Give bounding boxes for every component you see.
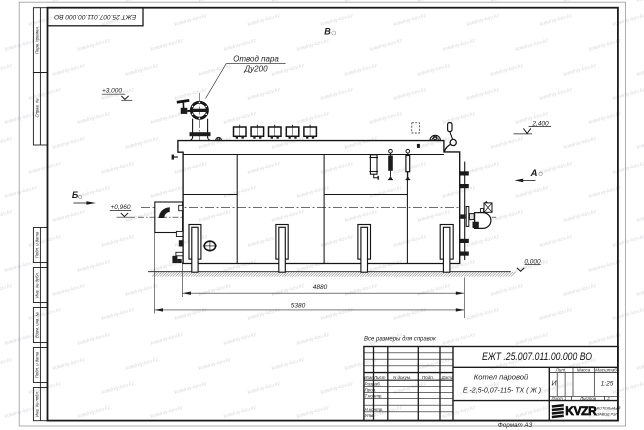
svg-text:Взам. инв. №: Взам. инв. № bbox=[35, 312, 40, 338]
svg-text:N докум.: N докум. bbox=[393, 375, 411, 380]
svg-text:Н.контр.: Н.контр. bbox=[365, 407, 384, 412]
svg-text:+3,000: +3,000 bbox=[102, 88, 122, 95]
svg-text:Котел паровой: Котел паровой bbox=[474, 372, 529, 381]
svg-text:ЕЖТ 25.007.011.00.000 ВО: ЕЖТ 25.007.011.00.000 ВО bbox=[54, 13, 136, 20]
svg-text:Изм.Лист: Изм.Лист bbox=[364, 375, 385, 380]
svg-text:Дата: Дата bbox=[441, 375, 454, 380]
svg-text:Разраб.: Разраб. bbox=[365, 382, 381, 387]
svg-text:Инв. № подл.: Инв. № подл. bbox=[35, 391, 40, 417]
svg-text:Масштаб: Масштаб bbox=[595, 368, 617, 373]
svg-text:Листов: Листов bbox=[579, 396, 597, 401]
svg-text:4880: 4880 bbox=[313, 284, 328, 291]
svg-text:Е -2,5-0,07-115- ТХ ( Ж ): Е -2,5-0,07-115- ТХ ( Ж ) bbox=[463, 387, 541, 394]
svg-text:Лист 1: Лист 1 bbox=[551, 396, 568, 401]
svg-text:Ду200: Ду200 bbox=[243, 65, 268, 74]
svg-text:Перв. примен.: Перв. примен. bbox=[35, 26, 40, 54]
svg-text:Формат А3: Формат А3 bbox=[498, 422, 533, 429]
svg-text:KVZR: KVZR bbox=[565, 404, 597, 418]
svg-text:Лит.: Лит. bbox=[555, 368, 567, 373]
svg-text:Отвод пара: Отвод пара bbox=[233, 55, 279, 64]
svg-text:Б: Б bbox=[72, 190, 79, 200]
svg-text:Пров.: Пров. bbox=[365, 388, 377, 393]
svg-text:Подп. и дата: Подп. и дата bbox=[35, 351, 40, 378]
svg-text:Подп. и дата: Подп. и дата bbox=[35, 231, 40, 258]
svg-text:А: А bbox=[530, 168, 538, 179]
svg-text:5380: 5380 bbox=[291, 302, 306, 309]
svg-text:Масса: Масса bbox=[577, 368, 591, 373]
svg-text:ЕЖТ .25.007.011.00.000 ВО: ЕЖТ .25.007.011.00.000 ВО bbox=[482, 351, 592, 363]
svg-text:Т.контр.: Т.контр. bbox=[365, 394, 383, 399]
svg-text:Справ. №: Справ. № bbox=[35, 98, 40, 117]
svg-text:В: В bbox=[324, 27, 331, 37]
svg-text:Утв.: Утв. bbox=[365, 413, 375, 418]
svg-text:Все размеры для справок: Все размеры для справок bbox=[364, 337, 437, 343]
svg-text:1:25: 1:25 bbox=[601, 380, 614, 387]
svg-text:+0,960: +0,960 bbox=[110, 204, 130, 211]
svg-text:2: 2 bbox=[606, 396, 610, 401]
svg-text:ЗАВОД РЭП: ЗАВОД РЭП bbox=[597, 413, 618, 417]
svg-text:КОТЕЛЬНЫЙ: КОТЕЛЬНЫЙ bbox=[597, 407, 621, 411]
svg-text:Инв. № дубл.: Инв. № дубл. bbox=[35, 272, 40, 298]
svg-text:Подп.: Подп. bbox=[422, 375, 434, 380]
